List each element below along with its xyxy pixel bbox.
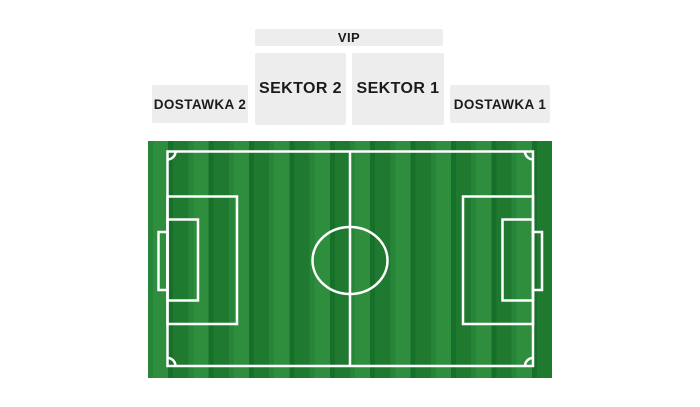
pitch-left-goal [159, 232, 168, 290]
section-sektor-2[interactable]: SEKTOR 2 [255, 53, 346, 125]
section-dostawka-2[interactable]: DOSTAWKA 2 [152, 85, 248, 123]
section-sektor-1[interactable]: SEKTOR 1 [352, 53, 444, 125]
section-dostawka-2-label: DOSTAWKA 2 [154, 97, 247, 112]
section-sektor-2-label: SEKTOR 2 [259, 80, 342, 98]
venue-seating-map: VIP SEKTOR 2 SEKTOR 1 DOSTAWKA 2 DOSTAWK… [0, 0, 700, 407]
section-sektor-1-label: SEKTOR 1 [357, 80, 440, 98]
section-vip-label: VIP [338, 30, 360, 45]
pitch-left-goal-area [168, 220, 199, 301]
football-pitch [148, 141, 552, 378]
section-dostawka-1[interactable]: DOSTAWKA 1 [450, 85, 550, 123]
pitch-right-goal [533, 232, 542, 290]
pitch-right-penalty-area [463, 197, 533, 325]
section-dostawka-1-label: DOSTAWKA 1 [454, 97, 547, 112]
pitch-markings-graphic [148, 141, 552, 378]
section-vip[interactable]: VIP [255, 29, 443, 46]
pitch-right-goal-area [503, 220, 534, 301]
pitch-left-penalty-area [168, 197, 238, 325]
